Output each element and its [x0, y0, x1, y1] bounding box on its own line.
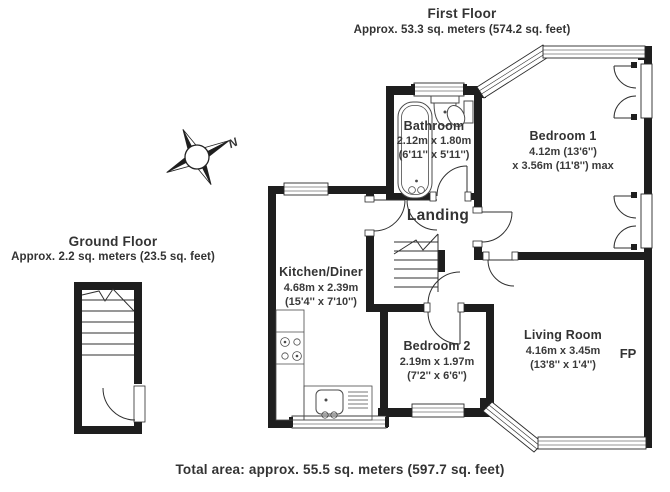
room-dims-kitchen-metric: 4.68m x 2.39m: [284, 282, 359, 294]
compass-n-label: N: [226, 135, 240, 151]
floor-plan-canvas: N First Floor Approx. 53.3 sq. meters (5…: [0, 0, 670, 492]
room-dims-living-room-imperial: (13'8'' x 1'4''): [530, 359, 596, 371]
room-dims-bathroom-metric: 2.12m x 1.80m: [397, 135, 472, 147]
ground-floor-subtitle: Approx. 2.2 sq. meters (23.5 sq. feet): [11, 251, 215, 263]
landing-stairs: [394, 234, 438, 292]
first-floor-title: First Floor: [428, 6, 497, 21]
kitchen-sink: [316, 390, 343, 418]
room-label-living-room: Living Room: [524, 328, 602, 342]
kitchen-fixtures: [276, 310, 372, 420]
ground-door-leaf: [134, 386, 145, 422]
room-dims-bedroom1-metric: 4.12m (13'6''): [529, 146, 597, 158]
room-label-landing: Landing: [407, 207, 469, 224]
compass-icon: N: [153, 113, 244, 200]
room-label-bedroom1: Bedroom 1: [529, 129, 596, 143]
total-area-label: Total area: approx. 55.5 sq. meters (597…: [175, 462, 504, 477]
ground-floor-plan: [74, 282, 145, 434]
room-label-bedroom2: Bedroom 2: [403, 339, 470, 353]
room-dims-bathroom-imperial: (6'11'' x 5'11''): [399, 149, 470, 161]
first-floor-walls: [268, 46, 652, 448]
ground-floor-title: Ground Floor: [69, 234, 158, 249]
room-dims-bedroom2-metric: 2.19m x 1.97m: [400, 356, 475, 368]
room-label-kitchen: Kitchen/Diner: [279, 265, 363, 279]
room-dims-living-room-metric: 4.16m x 3.45m: [526, 345, 601, 357]
drainer: [348, 392, 368, 408]
fireplace-label: FP: [620, 346, 637, 361]
bathroom-fixtures: [398, 96, 473, 198]
hob: [281, 338, 302, 361]
floorplan-page: N First Floor Approx. 53.3 sq. meters (5…: [0, 0, 670, 492]
room-dims-kitchen-imperial: (15'4'' x 7'10''): [285, 296, 357, 308]
first-floor-subtitle: Approx. 53.3 sq. meters (574.2 sq. feet): [354, 24, 571, 36]
room-dims-bedroom1-imperial: x 3.56m (11'8'') max: [512, 160, 614, 172]
room-label-bathroom: Bathroom: [404, 119, 465, 133]
room-dims-bedroom2-imperial: (7'2'' x 6'6''): [407, 370, 467, 382]
